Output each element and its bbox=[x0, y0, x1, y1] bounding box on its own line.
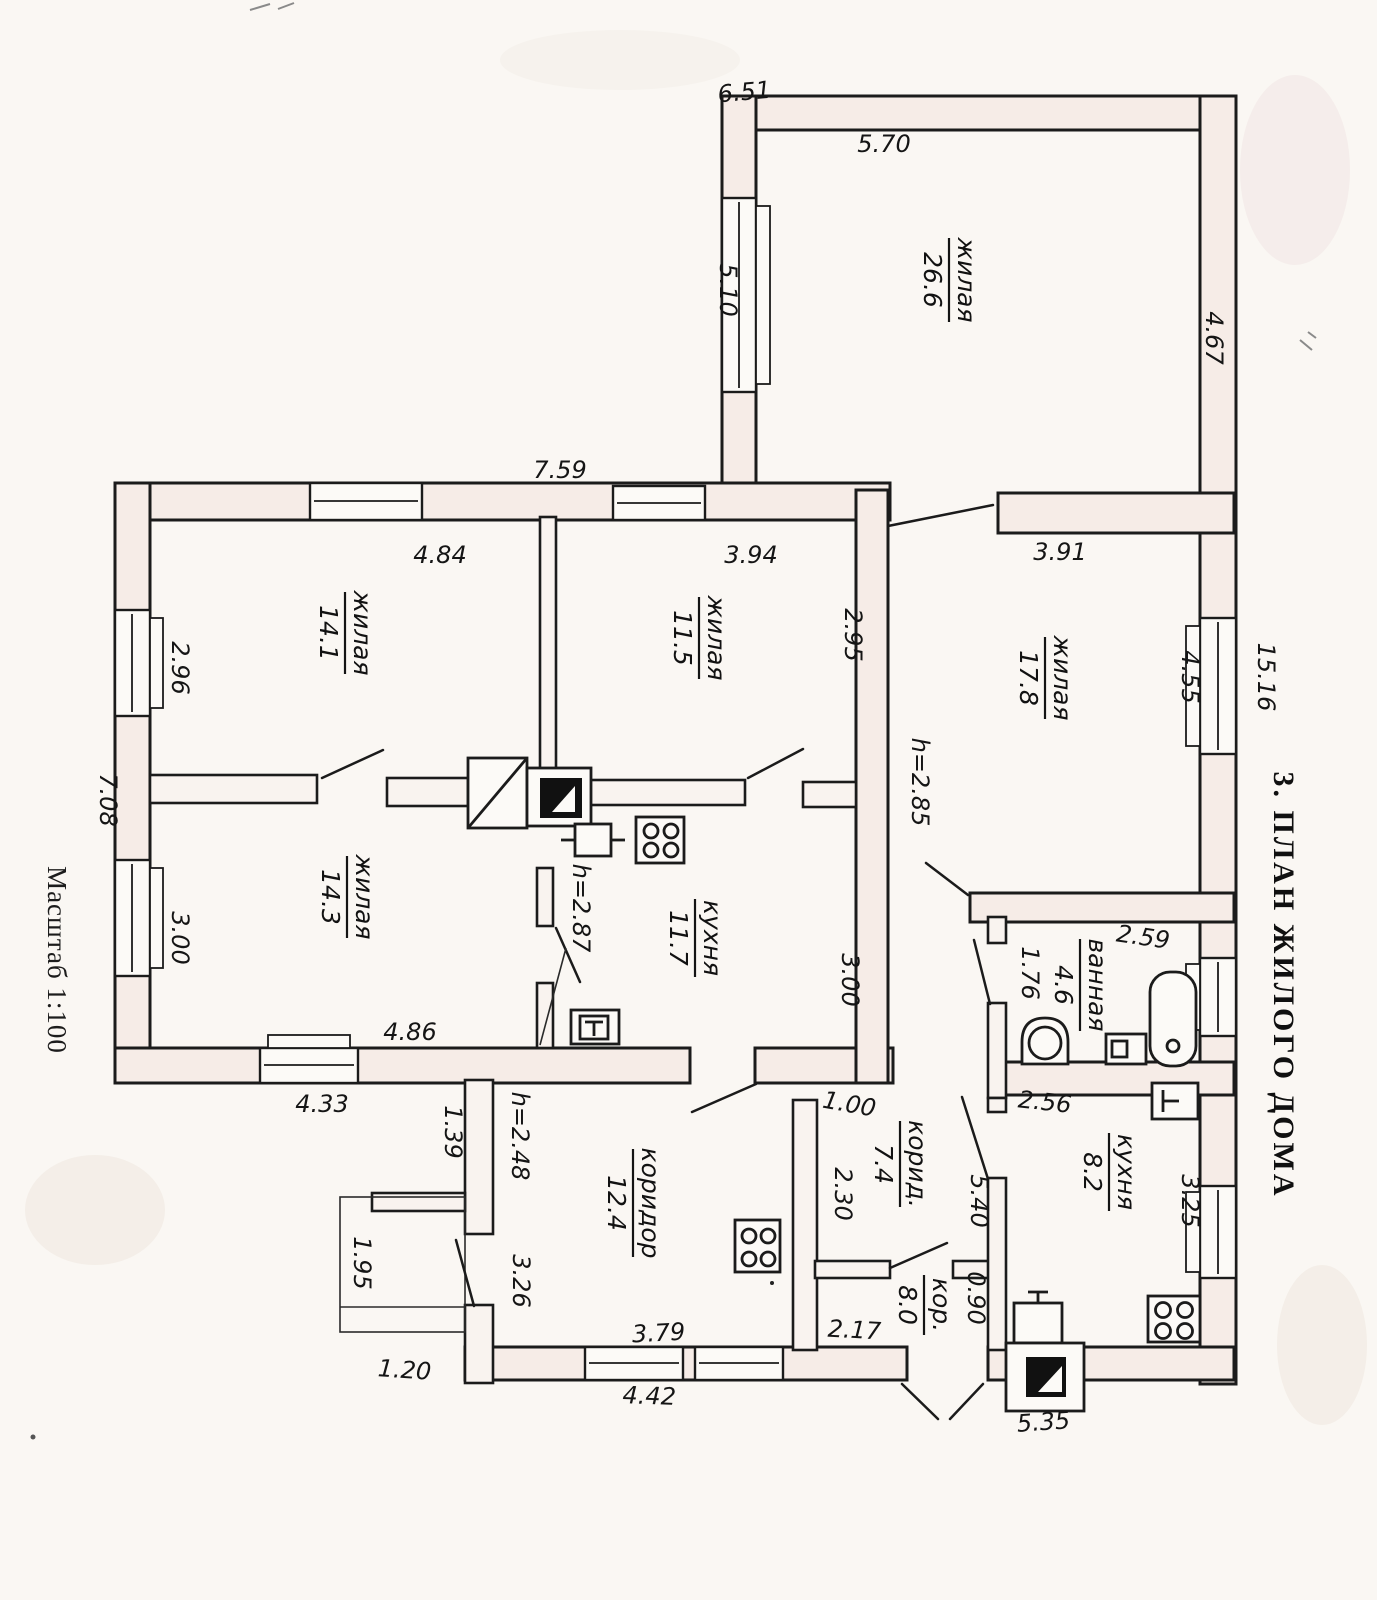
scan-stains bbox=[25, 3, 1367, 1440]
svg-text:кухня: кухня bbox=[698, 900, 727, 976]
svg-text:8.2: 8.2 bbox=[1078, 1152, 1107, 1192]
svg-text:11.7: 11.7 bbox=[664, 910, 693, 966]
window-icon bbox=[695, 1347, 783, 1380]
room-label-kuhnya-8-2: кухня 8.2 bbox=[1078, 1133, 1141, 1211]
dimension-labels: 6.51 5.70 4.67 5.10 7.59 4.84 3.94 3.91 … bbox=[94, 76, 1280, 1438]
room-label-koridor-12-4: коридор 12.4 bbox=[602, 1148, 665, 1259]
dim-1-39: 1.39 bbox=[439, 1105, 467, 1158]
drawing-title: 3. ПЛАН ЖИЛОГО ДОМА bbox=[1267, 771, 1300, 1198]
svg-text:жилая: жилая bbox=[702, 594, 731, 680]
room-label-korid-7-4: корид. 7.4 bbox=[869, 1120, 932, 1208]
ink-dot bbox=[31, 1435, 36, 1440]
svg-text:корид.: корид. bbox=[903, 1120, 932, 1208]
pencil-mark-top bbox=[250, 3, 294, 10]
dim-4-86: 4.86 bbox=[383, 1018, 436, 1046]
svg-text:12.4: 12.4 bbox=[602, 1175, 631, 1231]
window-icon bbox=[585, 1347, 683, 1380]
table-icon bbox=[561, 824, 625, 856]
toilet-icon bbox=[1022, 1018, 1068, 1064]
room-label-kor-8-0: кор. 8.0 bbox=[893, 1275, 956, 1335]
window-icon bbox=[115, 610, 163, 716]
dim-5-70: 5.70 bbox=[857, 130, 910, 158]
dim-2-95: 2.95 bbox=[839, 608, 867, 661]
washbasin-icon bbox=[1106, 1034, 1146, 1064]
dim-2-96: 2.96 bbox=[166, 641, 194, 694]
dim-2-30: 2.30 bbox=[829, 1167, 857, 1220]
gas-stove-icon bbox=[1148, 1296, 1200, 1342]
dim-4-55: 4.55 bbox=[1176, 650, 1204, 703]
svg-text:14.1: 14.1 bbox=[314, 605, 343, 661]
dim-7-59: 7.59 bbox=[533, 456, 586, 484]
room-label-zhilaya-14-3: жилая 14.3 bbox=[316, 853, 379, 939]
svg-text:жилая: жилая bbox=[348, 589, 377, 675]
dim-2-56: 2.56 bbox=[1017, 1085, 1073, 1118]
svg-text:кор.: кор. bbox=[927, 1278, 956, 1332]
room-label-zhilaya-11-5: жилая 11.5 bbox=[668, 594, 731, 680]
room-label-zhilaya-26-6: жилая 26.6 bbox=[918, 236, 981, 322]
gas-stove-icon bbox=[636, 817, 684, 863]
svg-text:17.8: 17.8 bbox=[1014, 650, 1043, 706]
furnace-icon bbox=[1006, 1343, 1084, 1411]
dim-5-10: 5.10 bbox=[714, 263, 742, 316]
dim-7-08: 7.08 bbox=[94, 773, 122, 826]
svg-text:жилая: жилая bbox=[1048, 634, 1077, 720]
dim-5-40: 5.40 bbox=[965, 1174, 993, 1227]
dim-1-76: 1.76 bbox=[1016, 946, 1044, 999]
dim-3-79: 3.79 bbox=[631, 1318, 686, 1349]
dim-1-95: 1.95 bbox=[348, 1236, 376, 1289]
sink-icon bbox=[571, 1010, 619, 1044]
dim-3-91: 3.91 bbox=[1033, 538, 1086, 566]
svg-text:8.0: 8.0 bbox=[893, 1285, 922, 1325]
svg-text:ванная: ванная bbox=[1083, 938, 1112, 1031]
svg-text:жилая: жилая bbox=[350, 853, 379, 939]
floor-plan-drawing: 6.51 5.70 4.67 5.10 7.59 4.84 3.94 3.91 … bbox=[0, 0, 1377, 1600]
dim-3-94: 3.94 bbox=[724, 541, 777, 569]
dim-h-2-87: h=2.87 bbox=[567, 864, 595, 953]
walls-outer bbox=[115, 96, 1236, 1384]
svg-text:жилая: жилая bbox=[952, 236, 981, 322]
door-swings bbox=[322, 505, 993, 1419]
bathtub-icon bbox=[1150, 972, 1196, 1066]
svg-text:4.6: 4.6 bbox=[1049, 965, 1078, 1005]
dim-4-42: 4.42 bbox=[622, 1381, 676, 1411]
room-label-vannaya-4-6: ванная 4.6 bbox=[1049, 938, 1112, 1031]
dim-h-2-48: h=2.48 bbox=[506, 1092, 534, 1181]
dim-0-90: 0.90 bbox=[962, 1271, 990, 1324]
window-icon bbox=[115, 860, 163, 976]
dim-1-20: 1.20 bbox=[377, 1354, 432, 1386]
dim-3-00-right: 3.00 bbox=[836, 953, 864, 1006]
dim-15-16: 15.16 bbox=[1252, 643, 1280, 712]
room-label-zhilaya-14-1: жилая 14.1 bbox=[314, 589, 377, 675]
pencil-mark-right bbox=[1300, 332, 1316, 350]
scanned-floor-plan-page: 6.51 5.70 4.67 5.10 7.59 4.84 3.94 3.91 … bbox=[0, 0, 1377, 1600]
room-label-kuhnya-11-7: кухня 11.7 bbox=[664, 899, 727, 977]
svg-text:11.5: 11.5 bbox=[668, 610, 697, 666]
svg-text:14.3: 14.3 bbox=[316, 869, 345, 925]
window-icon bbox=[310, 483, 422, 520]
gas-stove-icon bbox=[735, 1220, 780, 1285]
dim-6-51: 6.51 bbox=[716, 76, 772, 109]
svg-text:кухня: кухня bbox=[1112, 1134, 1141, 1210]
sink-icon bbox=[1152, 1083, 1198, 1119]
dim-h-2-85: h=2.85 bbox=[906, 738, 934, 827]
svg-text:26.6: 26.6 bbox=[918, 252, 947, 308]
scale-note: Масштаб 1:100 bbox=[42, 866, 72, 1054]
dim-3-25: 3.25 bbox=[1176, 1174, 1204, 1227]
dim-2-17: 2.17 bbox=[827, 1315, 883, 1346]
window-icon bbox=[260, 1035, 358, 1083]
dim-4-33: 4.33 bbox=[295, 1090, 348, 1118]
furnace-diagonal-icon bbox=[468, 758, 527, 828]
stove-flue-icon bbox=[527, 768, 591, 826]
room-label-zhilaya-17-8: жилая 17.8 bbox=[1014, 634, 1077, 720]
dim-5-35: 5.35 bbox=[1016, 1406, 1071, 1438]
dim-3-26: 3.26 bbox=[507, 1254, 535, 1307]
svg-text:коридор: коридор bbox=[636, 1148, 665, 1259]
svg-text:7.4: 7.4 bbox=[869, 1144, 898, 1184]
dim-1-00: 1.00 bbox=[821, 1086, 878, 1123]
window-icon bbox=[613, 486, 705, 520]
dim-2-59: 2.59 bbox=[1115, 919, 1172, 954]
dim-3-00-left: 3.00 bbox=[166, 911, 194, 964]
dim-4-67: 4.67 bbox=[1200, 311, 1228, 365]
dim-4-84: 4.84 bbox=[413, 541, 466, 569]
